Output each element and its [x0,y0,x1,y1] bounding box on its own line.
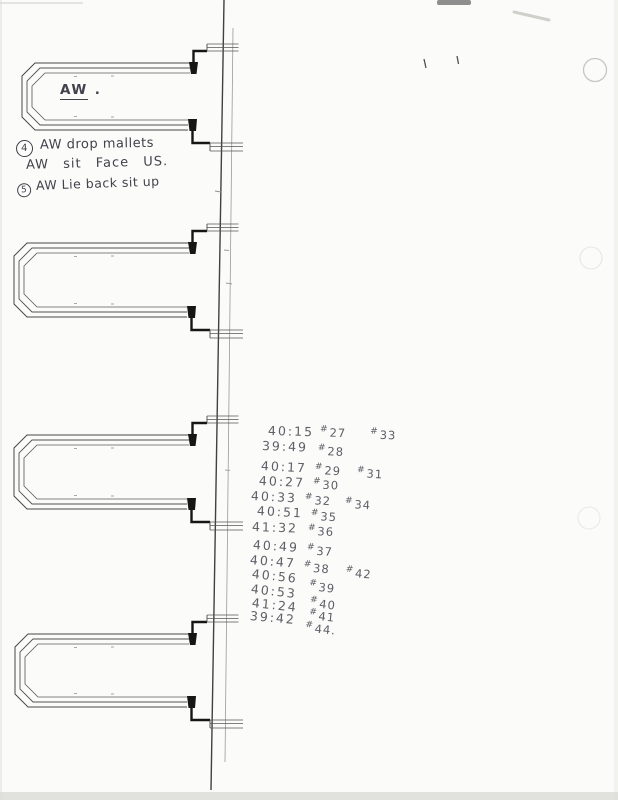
loop-1-line [32,73,190,120]
left-paper-edge [0,0,2,800]
time-value: 39:42 [249,608,296,627]
scan-streak [514,12,549,20]
connector-elbow [192,318,211,330]
bottom-scan-band [0,792,618,800]
loop1-label: AW. [60,82,101,98]
track-drawing [0,0,618,800]
note-line-1: 4AW drop mallets [16,136,154,157]
terminal-block [188,434,197,446]
take-number: #30 [313,476,340,492]
circled-number-badge: 4 [16,140,33,157]
take-number-value: 30 [322,478,339,493]
connector-elbow [193,622,208,633]
loop-4-line [20,639,189,702]
terminal-block [187,498,196,510]
connector-elbow [193,131,211,143]
take-number: #34 [345,496,372,512]
terminal-block [187,696,196,708]
time-row: 41:32#36 [252,519,335,537]
hash-symbol: # [370,427,379,437]
time-value: 40:51 [257,503,304,520]
loop-1-line [27,68,190,125]
take-number-value: 36 [317,524,334,539]
tick-mark [224,250,229,251]
punch-hole [578,507,600,529]
time-value: 40:15 [268,423,314,439]
terminal-block [188,119,197,131]
loop-3-line [14,435,189,509]
stray-pen-tick [424,59,426,68]
loop1-label-dot: . [95,82,102,98]
tick-mark [226,283,232,284]
scanned-page: AW. 4AW drop mallets AW sit Face US. 5AW… [0,0,618,800]
take-number: #44. [305,620,337,638]
take-number: #27 [320,424,347,440]
tick-mark [215,191,221,192]
take-number: #31 [357,465,384,481]
loop-3-line [24,445,189,499]
hash-symbol: # [305,620,314,631]
take-number-value: 31 [366,467,383,482]
loop-4-line [15,634,189,707]
terminal-block [187,306,196,318]
hash-symbol: # [308,523,317,533]
connector-elbow [192,708,211,720]
loop-3-line [19,440,189,504]
connector-elbow [194,51,208,62]
terminal-block [188,633,197,645]
right-paper-edge [614,0,618,800]
secondary-vertical-line [225,28,233,762]
time-value: 39:49 [262,438,309,455]
top-edge-smudge [437,0,471,5]
take-number-value: 33 [380,428,397,442]
loop1-label-text: AW [60,82,88,100]
take-number-value: 44. [314,622,336,638]
circled-number-badge: 5 [17,183,31,197]
loop-4-line [25,644,189,697]
note-line-1-text: AW drop mallets [40,136,154,153]
time-value: 40:27 [259,473,306,490]
hash-symbol: # [357,465,366,475]
connector-elbow [193,231,208,242]
hash-symbol: # [307,542,316,553]
terminal-block [189,62,198,74]
loop-2-line [24,253,189,307]
take-number-value: 34 [354,497,371,512]
terminal-block [188,242,197,254]
main-vertical-line [211,0,224,790]
connector-elbow [193,423,208,434]
connector-elbow [192,510,211,522]
take-number: #33 [370,427,397,443]
hash-symbol: # [345,496,354,506]
take-number-value: 27 [329,426,346,440]
punch-hole [580,247,602,269]
loop-2-line [14,243,189,317]
time-list: 40:15#27#3339:49#2840:17#29#3140:27#3040… [248,420,458,655]
time-value: 41:32 [252,519,299,536]
tick-mark [225,470,230,471]
hash-symbol: # [345,565,354,576]
hash-symbol: # [303,559,312,570]
take-number-value: 28 [327,444,344,459]
time-row: 39:49#28 [262,438,345,456]
punch-hole [584,59,607,82]
take-number: #42 [345,565,372,582]
hash-symbol: # [305,492,314,502]
hash-symbol: # [311,508,320,518]
note-line-3-text: AW Lie back sit up [36,174,160,193]
stray-pen-tick [457,56,459,64]
take-number: #28 [318,443,345,459]
hash-symbol: # [320,424,329,434]
hash-symbol: # [315,462,324,472]
hash-symbol: # [313,476,322,486]
take-number-value: 42 [354,566,372,581]
hash-symbol: # [318,443,327,453]
take-number: #36 [308,523,335,539]
loop-2-line [19,248,189,312]
